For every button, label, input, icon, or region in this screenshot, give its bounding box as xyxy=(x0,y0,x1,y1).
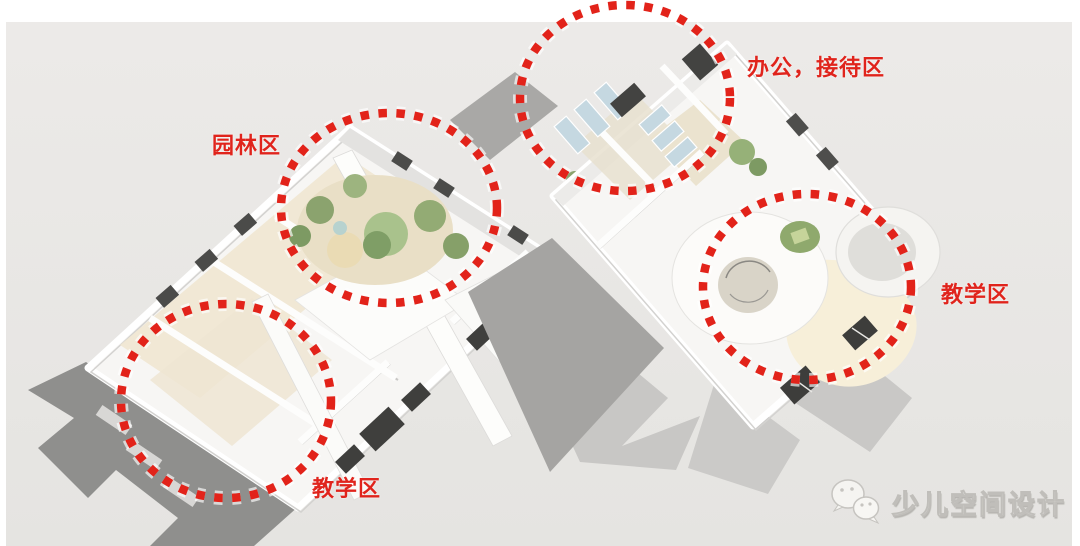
wechat-icon xyxy=(826,476,884,528)
watermark: 少儿空间设计 xyxy=(826,476,1066,528)
zone-label-teaching-right: 教学区 xyxy=(941,284,1010,306)
floorplan-annotation-image: 园林区 办公，接待区 教学区 教学区 少儿空间设计 xyxy=(0,0,1080,546)
building-3d-render xyxy=(0,0,1080,546)
zone-label-teaching-left: 教学区 xyxy=(312,478,381,500)
zone-label-office: 办公，接待区 xyxy=(747,57,885,79)
zone-label-garden: 园林区 xyxy=(212,135,281,157)
watermark-text: 少儿空间设计 xyxy=(892,483,1066,522)
